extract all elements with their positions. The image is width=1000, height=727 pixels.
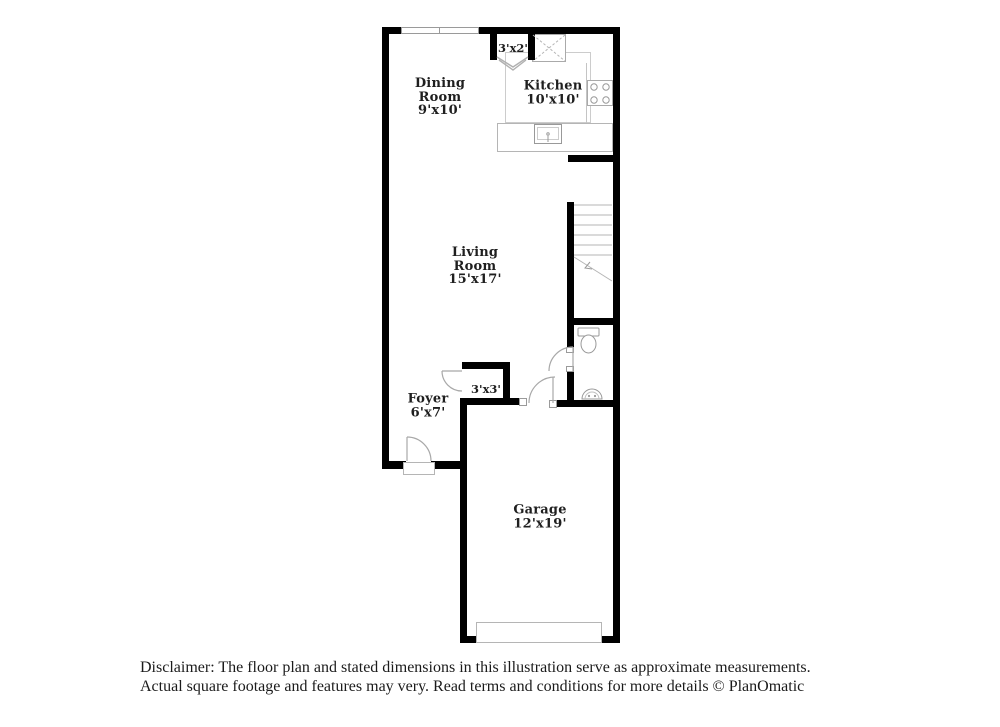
room-name: Dining [415, 77, 465, 91]
kitchen-sink-faucet-icon [547, 133, 549, 142]
hall-closet-label: 3'x2' [498, 41, 528, 55]
living-room-label: Living Room 15'x17' [448, 246, 501, 287]
bathroom-door-swing-icon [549, 347, 573, 371]
garage-label: Garage 12'x19' [513, 504, 566, 531]
stove-burners-icon [591, 84, 609, 103]
bathroom-sink-icon [582, 389, 602, 399]
room-dimensions: 10'x10' [524, 93, 583, 107]
fixture-overlay [0, 0, 1000, 727]
foyer-label: Foyer 6'x7' [408, 393, 449, 420]
disclaimer-line: Disclaimer: The floor plan and stated di… [140, 658, 811, 677]
room-name: Foyer [408, 393, 449, 407]
stairs-icon [574, 205, 612, 281]
kitchen-label: Kitchen 10'x10' [524, 80, 583, 107]
room-name: Room [415, 90, 465, 104]
floor-plan-page: Dining Room 9'x10' Kitchen 10'x10' Livin… [0, 0, 1000, 727]
room-dimensions: 12'x19' [513, 517, 566, 531]
toilet-icon [578, 328, 599, 353]
refrigerator-x-icon [533, 35, 565, 61]
garage-entry-door-swing-icon [529, 377, 555, 403]
disclaimer-line: Actual square footage and features may v… [140, 677, 811, 696]
room-name: Garage [513, 504, 566, 518]
room-dimensions: 15'x17' [448, 273, 501, 287]
bifold-door-icon [497, 57, 528, 70]
room-name: Room [448, 259, 501, 273]
dining-room-label: Dining Room 9'x10' [415, 77, 465, 118]
foyer-closet-label: 3'x3' [471, 382, 501, 396]
disclaimer-text: Disclaimer: The floor plan and stated di… [140, 658, 811, 696]
front-door-swing-icon [407, 437, 431, 461]
room-dimensions: 9'x10' [415, 104, 465, 118]
closet-door-swing-icon [442, 371, 462, 391]
room-name: Living [448, 246, 501, 260]
room-name: Kitchen [524, 80, 583, 94]
room-dimensions: 6'x7' [408, 406, 449, 420]
